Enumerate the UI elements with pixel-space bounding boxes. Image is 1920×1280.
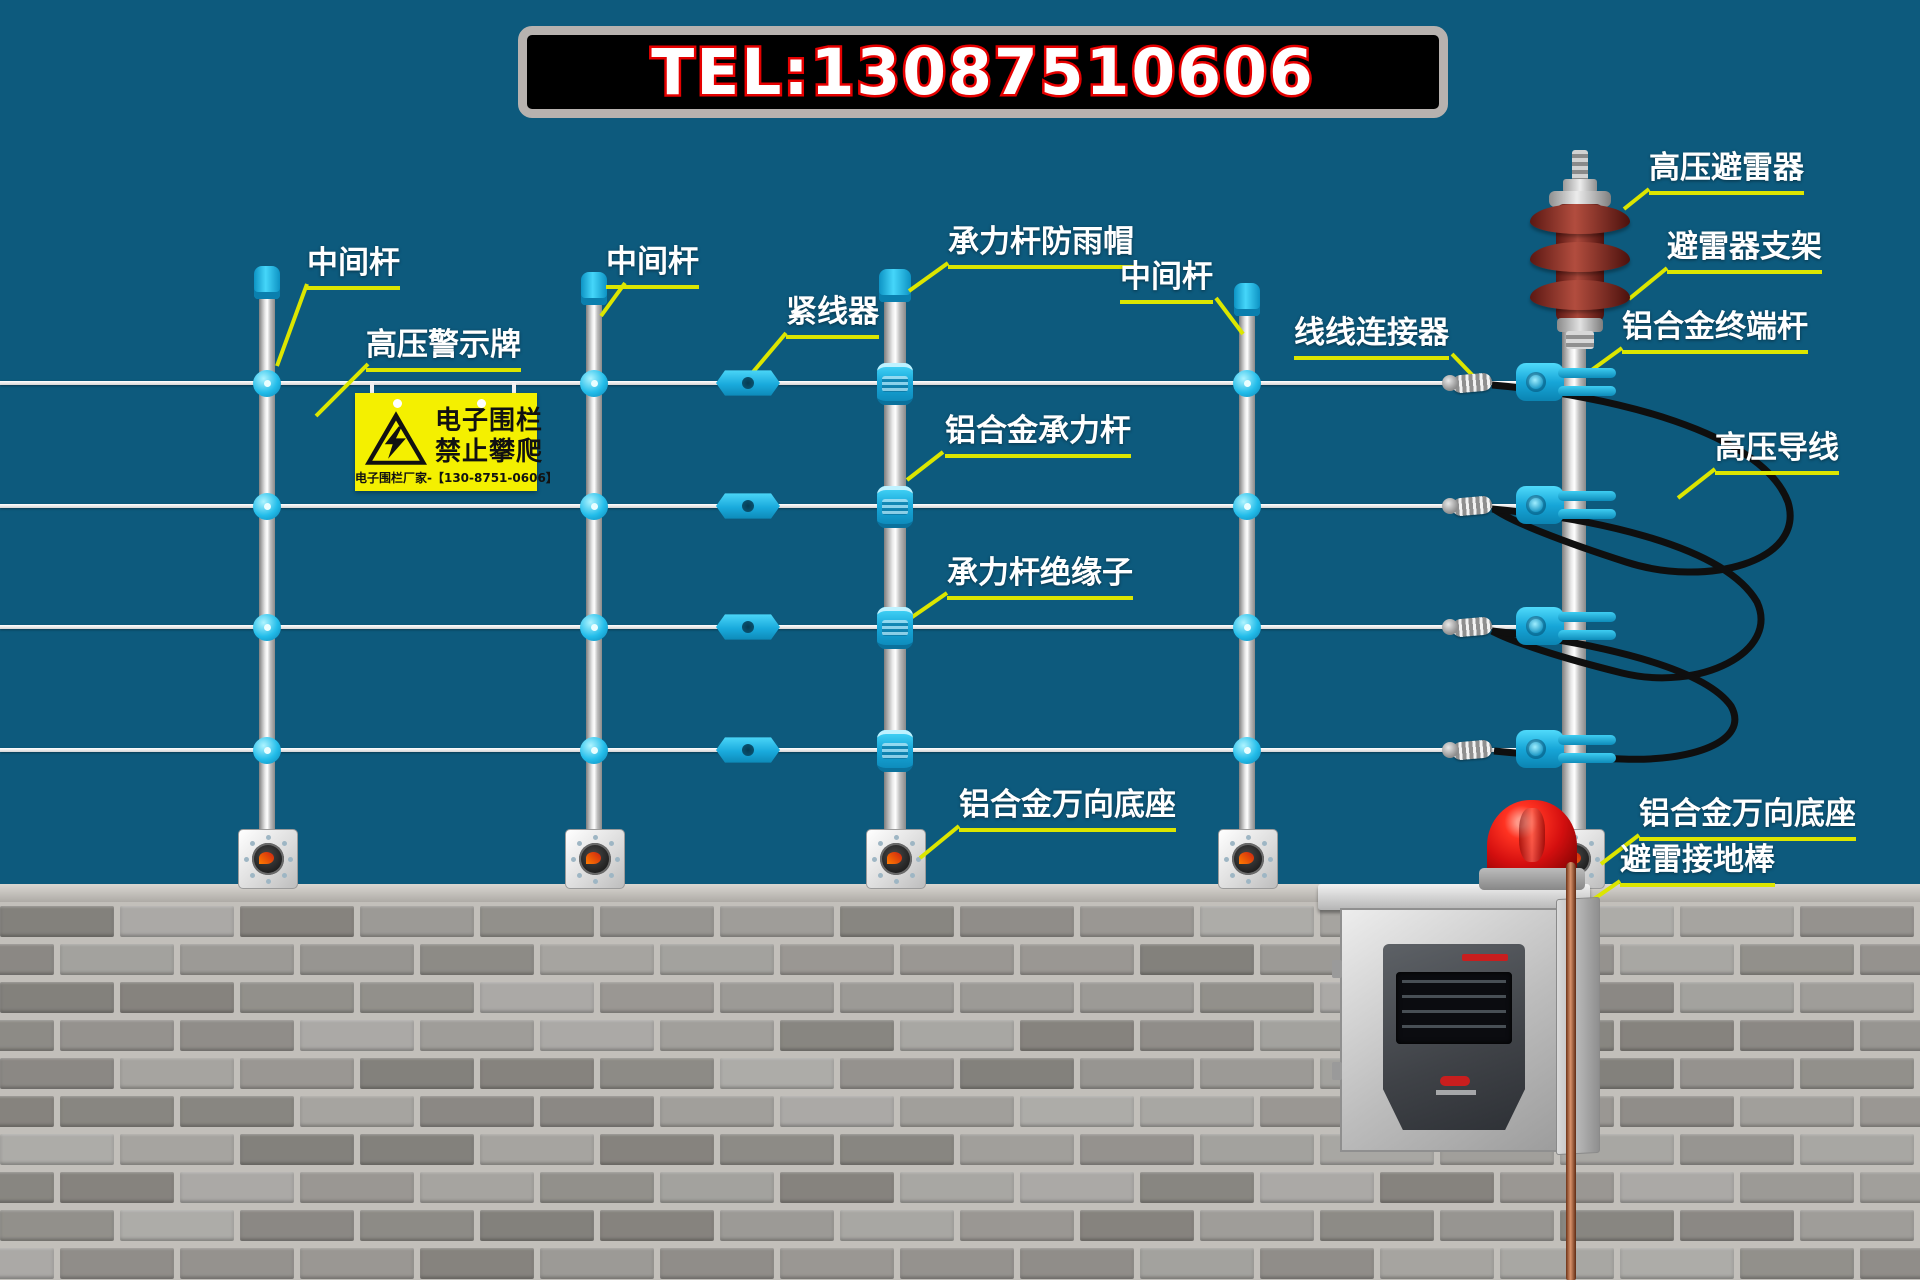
- wall-brick: [300, 1248, 414, 1279]
- ground-rod: [1566, 862, 1576, 1280]
- pole-rain-cap: [1234, 283, 1260, 316]
- control-box-door: [1556, 897, 1600, 1155]
- wall-brick: [1800, 1134, 1914, 1165]
- label-mid-pole-1: 中间杆: [307, 247, 400, 290]
- wall-brick: [1260, 1248, 1374, 1279]
- wall-brick: [1320, 1210, 1434, 1241]
- wall-brick: [720, 982, 834, 1013]
- cabinet-hinge: [1332, 960, 1342, 978]
- wall-brick: [1860, 1172, 1920, 1203]
- label-load-insulator: 承力杆绝缘子: [947, 557, 1133, 600]
- wall-brick: [1080, 906, 1194, 937]
- terminal-tensioner: [1516, 730, 1564, 768]
- wire-insulator: [1233, 493, 1261, 520]
- wall-brick: [120, 1134, 234, 1165]
- wall-brick: [1200, 1134, 1314, 1165]
- wall-brick: [1080, 1058, 1194, 1089]
- wall-brick: [840, 1134, 954, 1165]
- wall-brick: [1020, 1248, 1134, 1279]
- sign-line2: 禁止攀爬: [435, 437, 543, 468]
- wall-brick: [240, 1058, 354, 1089]
- wall-brick: [240, 906, 354, 937]
- connector-ball: [1442, 375, 1458, 391]
- wall-brick: [420, 1020, 534, 1051]
- wall-brick: [1080, 1134, 1194, 1165]
- wall-brick: [360, 1058, 474, 1089]
- wall-brick: [1020, 1172, 1134, 1203]
- terminal-clamp-band: [1558, 509, 1616, 519]
- fence-wire: [0, 504, 1586, 508]
- wire-insulator: [253, 370, 281, 397]
- label-ground-rod: 避雷接地棒: [1620, 844, 1775, 887]
- sign-footer-text: 电子围栏厂家-【130-8751-0606】: [355, 469, 537, 486]
- inline-tensioner: [716, 491, 780, 521]
- inline-tensioner: [716, 368, 780, 398]
- pole-rain-cap: [879, 269, 911, 302]
- universal-base: [238, 829, 298, 889]
- wall-brick: [1500, 1172, 1614, 1203]
- wall-brick: [960, 1210, 1074, 1241]
- label-warning-board: 高压警示牌: [366, 329, 521, 372]
- wall-brick: [1620, 1096, 1734, 1127]
- wall-brick: [780, 1248, 894, 1279]
- label-load-pole: 铝合金承力杆: [945, 415, 1131, 458]
- universal-base: [866, 829, 926, 889]
- terminal-tensioner: [1516, 486, 1564, 524]
- terminal-tensioner: [1516, 607, 1564, 645]
- wall-brick: [1200, 982, 1314, 1013]
- wall-brick: [1200, 1210, 1314, 1241]
- wire-insulator: [1233, 614, 1261, 641]
- wall-brick: [120, 1210, 234, 1241]
- wall-brick: [1620, 1020, 1734, 1051]
- wall-brick: [960, 982, 1074, 1013]
- wire-insulator: [1233, 370, 1261, 397]
- arrester-skirt: [1530, 242, 1630, 272]
- wall-brick: [1140, 944, 1254, 975]
- wall-brick: [0, 1134, 114, 1165]
- wall-brick: [780, 1020, 894, 1051]
- wall-brick: [540, 1096, 654, 1127]
- wall-brick: [1500, 1248, 1614, 1279]
- wall-brick: [0, 1020, 54, 1051]
- wall-brick: [180, 1248, 294, 1279]
- wall-brick: [180, 1020, 294, 1051]
- wall-brick: [60, 1020, 174, 1051]
- electric-fence-diagram: 电子围栏 禁止攀爬 电子围栏厂家-【130-8751-0606】 中间杆 高压警…: [0, 0, 1920, 1280]
- terminal-clamp-band: [1558, 386, 1616, 396]
- terminal-clamp-band: [1558, 368, 1616, 378]
- wall-brick: [1680, 1058, 1794, 1089]
- wall-brick: [1560, 1210, 1674, 1241]
- wire-insulator: [580, 614, 608, 641]
- fence-wire: [0, 625, 1586, 629]
- lightning-warning-icon: [363, 409, 429, 469]
- arrester-skirt: [1530, 204, 1630, 234]
- label-mid-pole-2: 中间杆: [606, 246, 699, 289]
- hv-warning-sign: 电子围栏 禁止攀爬 电子围栏厂家-【130-8751-0606】: [355, 393, 537, 491]
- wall-brick: [1080, 982, 1194, 1013]
- wall-brick: [600, 1210, 714, 1241]
- wall-brick: [120, 982, 234, 1013]
- wall-brick: [0, 1248, 54, 1279]
- phone-number: TEL:13087510606: [651, 36, 1315, 109]
- wall-brick: [300, 1020, 414, 1051]
- wall-brick: [420, 1096, 534, 1127]
- label-base-mid: 铝合金万向底座: [959, 789, 1176, 832]
- wall-brick: [360, 1134, 474, 1165]
- wall-brick: [240, 1210, 354, 1241]
- wall-brick: [1620, 1172, 1734, 1203]
- controller-logo: [1440, 1076, 1470, 1086]
- wall-brick: [840, 1210, 954, 1241]
- label-rain-cap: 承力杆防雨帽: [948, 226, 1134, 269]
- wall-brick: [60, 944, 174, 975]
- wire-insulator: [253, 614, 281, 641]
- wall-brick: [240, 982, 354, 1013]
- wall-brick: [720, 1134, 834, 1165]
- wall-brick: [600, 1058, 714, 1089]
- wall-brick: [120, 1058, 234, 1089]
- wall-brick: [960, 1058, 1074, 1089]
- wall-brick: [1740, 1172, 1854, 1203]
- wall-brick: [480, 982, 594, 1013]
- wall-brick: [900, 944, 1014, 975]
- label-base-right: 铝合金万向底座: [1639, 798, 1856, 841]
- terminal-clamp-band: [1558, 735, 1616, 745]
- wall-brick: [120, 906, 234, 937]
- arrester-skirt: [1530, 280, 1630, 310]
- inline-tensioner: [716, 735, 780, 765]
- wall-brick: [480, 1210, 594, 1241]
- wall-brick: [0, 906, 114, 937]
- wall-brick: [480, 1058, 594, 1089]
- universal-base: [565, 829, 625, 889]
- wall-brick: [1740, 1096, 1854, 1127]
- wall-brick: [300, 944, 414, 975]
- wall-brick: [240, 1134, 354, 1165]
- arrester-bottom-nut: [1566, 331, 1594, 349]
- wall-brick: [1020, 1096, 1134, 1127]
- wall-brick: [1860, 1020, 1920, 1051]
- wall-brick: [1680, 1134, 1794, 1165]
- wall-brick: [360, 982, 474, 1013]
- wall-brick: [180, 1096, 294, 1127]
- wall-brick: [1140, 1172, 1254, 1203]
- wall-brick: [1860, 1096, 1920, 1127]
- wall-brick: [180, 944, 294, 975]
- wire-insulator: [580, 493, 608, 520]
- wire-insulator: [1233, 737, 1261, 764]
- wall-brick: [1620, 1248, 1734, 1279]
- sign-hole: [393, 399, 402, 408]
- inline-tensioner: [716, 612, 780, 642]
- base-center-logo: [252, 843, 284, 875]
- wall-brick: [0, 1172, 54, 1203]
- wall-brick: [1080, 1210, 1194, 1241]
- wall-brick: [660, 1020, 774, 1051]
- pole-rain-cap: [254, 266, 280, 299]
- wall-brick: [1800, 1210, 1914, 1241]
- wall-brick: [600, 1134, 714, 1165]
- wall-brick: [1680, 1210, 1794, 1241]
- wall-brick: [600, 982, 714, 1013]
- controller-logo-subtext: [1436, 1090, 1476, 1095]
- wall-brick: [1440, 1210, 1554, 1241]
- wall-brick: [1140, 1248, 1254, 1279]
- wall-brick: [1740, 1248, 1854, 1279]
- wall-brick: [180, 1172, 294, 1203]
- wall-brick: [1620, 944, 1734, 975]
- wall-brick: [720, 1058, 834, 1089]
- wire-insulator: [580, 370, 608, 397]
- connector-ball: [1442, 498, 1458, 514]
- wall-brick: [420, 944, 534, 975]
- controller-display: [1396, 972, 1512, 1044]
- wall-brick: [1140, 1020, 1254, 1051]
- wall-brick: [900, 1248, 1014, 1279]
- wire-insulator: [253, 737, 281, 764]
- base-center-logo: [1232, 843, 1264, 875]
- pole-rain-cap: [581, 272, 607, 305]
- wall-brick: [360, 1210, 474, 1241]
- wall-brick: [1140, 1096, 1254, 1127]
- wall-brick: [1800, 906, 1914, 937]
- terminal-clamp-band: [1558, 612, 1616, 622]
- wall-brick: [1800, 982, 1914, 1013]
- wall-brick: [660, 1248, 774, 1279]
- load-pole-insulator: [877, 486, 913, 528]
- wall-brick: [660, 1172, 774, 1203]
- wall-brick: [60, 1248, 174, 1279]
- load-pole-insulator: [877, 363, 913, 405]
- wall-brick: [1860, 944, 1920, 975]
- wall-brick: [420, 1248, 534, 1279]
- fence-wire: [0, 748, 1586, 752]
- wall-brick: [780, 1172, 894, 1203]
- wall-brick: [780, 944, 894, 975]
- arrester-stud: [1572, 150, 1588, 182]
- wall-brick: [1260, 1172, 1374, 1203]
- universal-base: [1218, 829, 1278, 889]
- wall-brick: [420, 1172, 534, 1203]
- wall-brick: [0, 1096, 54, 1127]
- label-arrester: 高压避雷器: [1649, 152, 1804, 195]
- wall-brick: [1740, 944, 1854, 975]
- wall-brick: [300, 1172, 414, 1203]
- arrester-foot: [1557, 318, 1603, 332]
- load-pole-insulator: [877, 607, 913, 649]
- fence-wire: [0, 381, 1586, 385]
- wall-brick: [480, 906, 594, 937]
- wall-brick: [840, 982, 954, 1013]
- wall-brick: [1740, 1020, 1854, 1051]
- wall-brick: [1680, 906, 1794, 937]
- label-tensioner: 紧线器: [786, 296, 879, 339]
- label-terminal-pole: 铝合金终端杆: [1622, 311, 1808, 354]
- wall-brick: [1020, 944, 1134, 975]
- wall-brick: [480, 1134, 594, 1165]
- wall-brick: [60, 1096, 174, 1127]
- wall-brick: [1800, 1058, 1914, 1089]
- load-pole-insulator: [877, 730, 913, 772]
- wire-insulator: [253, 493, 281, 520]
- wall-brick: [1020, 1020, 1134, 1051]
- wall-brick: [0, 944, 54, 975]
- label-wire-connector: 线线连接器: [1294, 317, 1449, 360]
- controller-red-label: [1462, 954, 1508, 961]
- connector-ball: [1442, 742, 1458, 758]
- terminal-clamp-band: [1558, 491, 1616, 501]
- wall-brick: [840, 1058, 954, 1089]
- wire-insulator: [580, 737, 608, 764]
- wall-brick: [900, 1096, 1014, 1127]
- sign-line1: 电子围栏: [435, 406, 543, 437]
- label-hv-lead-wire: 高压导线: [1715, 432, 1839, 475]
- wall-brick: [540, 1248, 654, 1279]
- terminal-clamp-band: [1558, 630, 1616, 640]
- label-arrester-bracket: 避雷器支架: [1667, 231, 1822, 274]
- wall-brick: [60, 1172, 174, 1203]
- wall-brick: [300, 1096, 414, 1127]
- wall-brick: [960, 906, 1074, 937]
- terminal-clamp-band: [1558, 753, 1616, 763]
- wall-brick: [360, 906, 474, 937]
- wall-brick: [0, 1058, 114, 1089]
- wall-brick: [780, 1096, 894, 1127]
- sign-main-text: 电子围栏 禁止攀爬: [435, 406, 543, 467]
- wall-brick: [720, 1210, 834, 1241]
- wall-brick: [1200, 906, 1314, 937]
- connector-ball: [1442, 619, 1458, 635]
- wall-brick: [660, 1096, 774, 1127]
- wall-brick: [600, 906, 714, 937]
- wall-brick: [0, 982, 114, 1013]
- wall-brick: [1380, 1172, 1494, 1203]
- wall-brick: [1860, 1248, 1920, 1279]
- wall-brick: [840, 906, 954, 937]
- base-center-logo: [579, 843, 611, 875]
- wall-brick: [540, 944, 654, 975]
- wall-brick: [900, 1172, 1014, 1203]
- wall-brick: [1380, 1248, 1494, 1279]
- wall-brick: [900, 1020, 1014, 1051]
- wall-brick: [0, 1210, 114, 1241]
- base-center-logo: [880, 843, 912, 875]
- cabinet-hinge: [1332, 1062, 1342, 1080]
- wall-brick: [1680, 982, 1794, 1013]
- wall-brick: [720, 906, 834, 937]
- brick-wall: [0, 902, 1920, 1280]
- label-mid-pole-3: 中间杆: [1120, 261, 1213, 304]
- wall-brick: [540, 1020, 654, 1051]
- wall-brick: [960, 1134, 1074, 1165]
- wall-brick: [1200, 1058, 1314, 1089]
- terminal-tensioner: [1516, 363, 1564, 401]
- wall-brick: [540, 1172, 654, 1203]
- phone-banner: TEL:13087510606: [518, 26, 1448, 118]
- wall-brick: [660, 944, 774, 975]
